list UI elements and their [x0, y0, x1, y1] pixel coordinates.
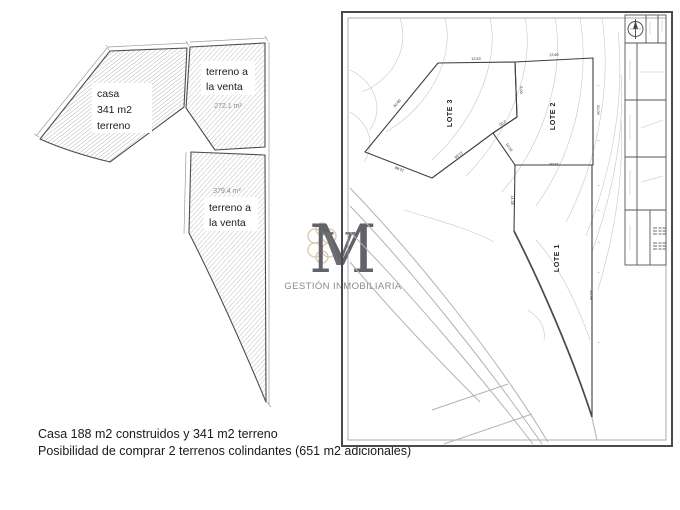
lower-plot-area-label: 379.4 m²: [213, 188, 241, 195]
lote-3-boundary: [365, 62, 517, 178]
upper-plot-area-label: 272.1 m²: [214, 103, 242, 110]
lote-1-boundary: [514, 165, 592, 417]
dimension-label: 13.60: [549, 53, 559, 57]
upper-plot-label-line1: terreno a: [206, 66, 248, 78]
dimension-label: 2.00: [498, 119, 506, 126]
lot-name-label: LOTE 3: [447, 99, 454, 127]
hand-drawn-plot-diagram: casa 341 m2 terreno terreno a la venta 2…: [30, 30, 280, 420]
house-label-line1: casa: [97, 88, 119, 100]
dimension-label: 13.53: [471, 57, 481, 61]
road-edge-bold: [514, 231, 592, 417]
upper-plot-label-card: terreno a la venta: [201, 61, 255, 95]
dimension-label: 43.98: [589, 290, 593, 300]
plan-labels: 13.5313.605.0020.0012.8812.6610.002.0010…: [393, 53, 600, 300]
dimension-label: 20.00: [393, 98, 402, 108]
lower-plot-label-card: terreno a la venta: [204, 197, 258, 231]
title-block: [625, 15, 666, 265]
contour-lines: [350, 18, 622, 340]
upper-plot-shape: [186, 43, 265, 150]
stamp-blocks: [653, 228, 666, 249]
lot-name-label: LOTE 1: [554, 244, 561, 272]
upper-plot-label-line2: la venta: [206, 81, 243, 93]
house-label-card: casa 341 m2 terreno: [92, 83, 152, 133]
dimension-label: 12.66: [454, 150, 464, 159]
lower-plot-label-line2: la venta: [209, 217, 246, 229]
site-plan-drawing: 13.5313.605.0020.0012.8812.6610.002.0010…: [340, 10, 676, 450]
real-estate-listing-image: casa 341 m2 terreno terreno a la venta 2…: [0, 0, 680, 510]
north-arrow-icon: [628, 19, 643, 39]
house-label-line3: terreno: [97, 120, 130, 132]
lower-plot-label-line1: terreno a: [209, 202, 251, 214]
dimension-label: 13.60: [549, 162, 559, 166]
house-label-line2: 341 m2: [97, 104, 132, 116]
plan-frame: [342, 12, 672, 446]
title-block-detail: [630, 20, 663, 250]
dimension-label: 14.38: [510, 195, 514, 205]
lot-name-label: LOTE 2: [550, 102, 557, 130]
road-lines: [350, 188, 597, 444]
dimension-label: 10.00: [596, 105, 600, 115]
lot-boundaries: [365, 58, 593, 417]
dimension-label: 5.00: [519, 86, 523, 93]
